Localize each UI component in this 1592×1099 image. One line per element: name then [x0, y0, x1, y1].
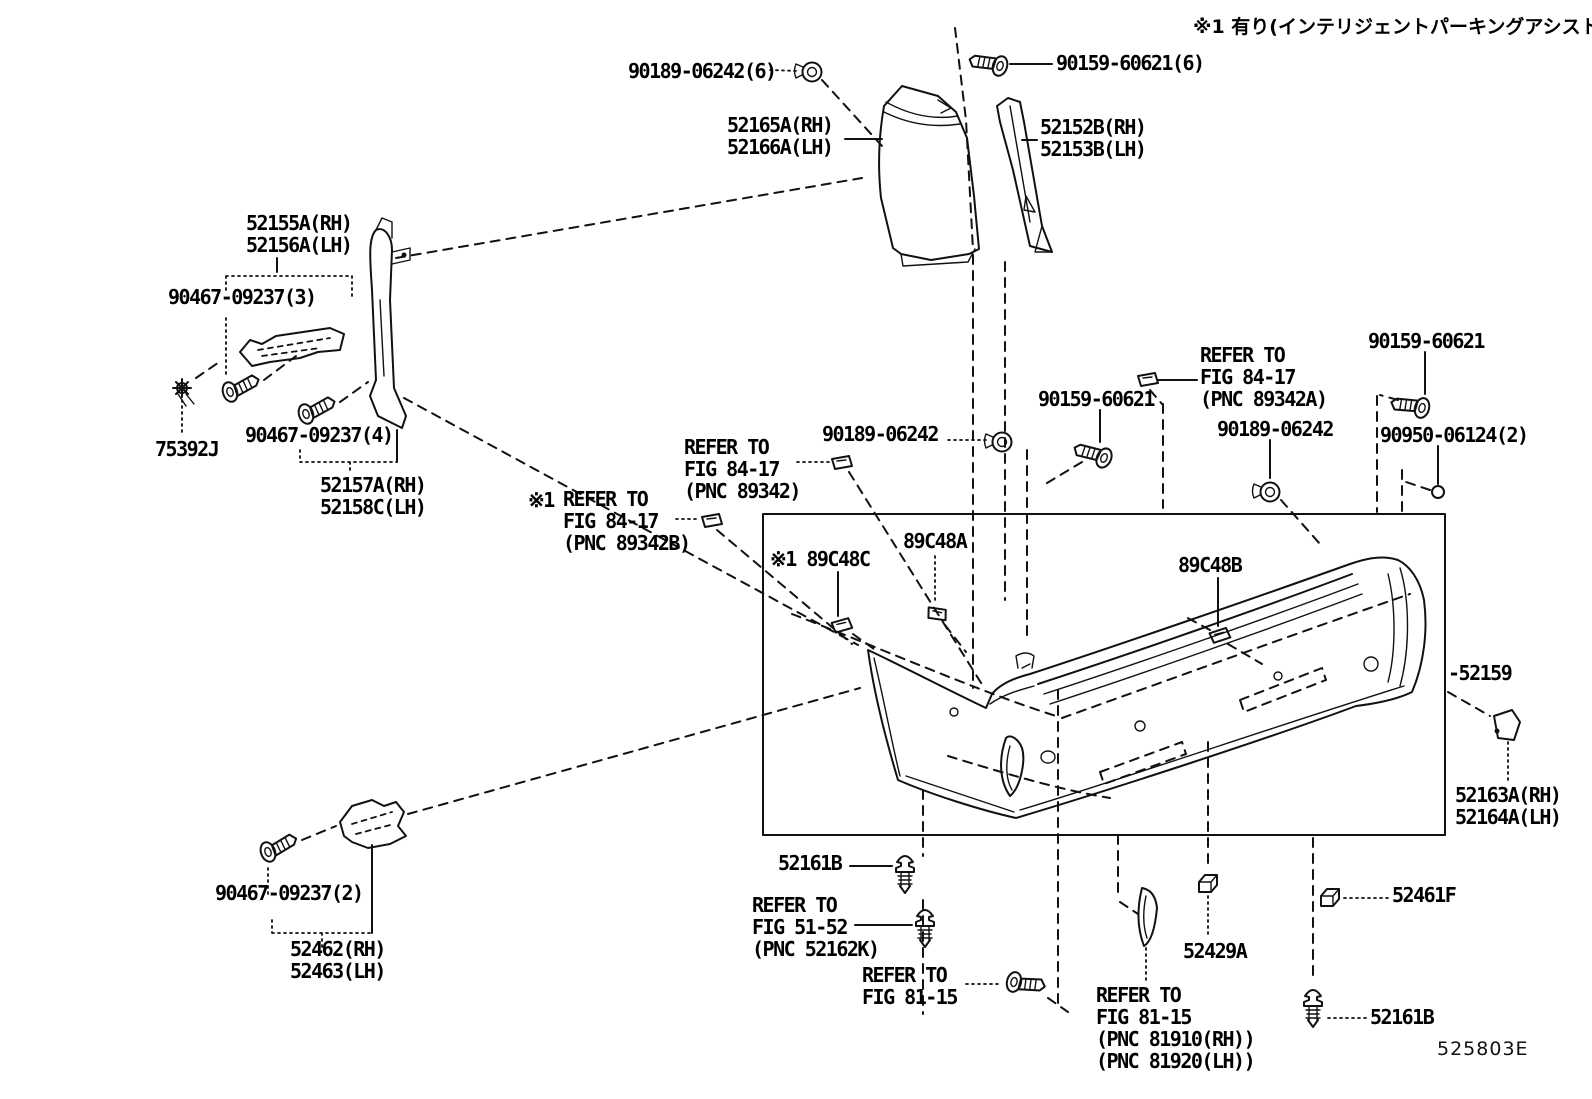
screw-icon — [967, 47, 1009, 78]
part-label-90159-60621-6: 90159-60621(6) — [1056, 52, 1204, 74]
grommet-icon — [1253, 483, 1280, 502]
pin-90950-icon — [1432, 486, 1444, 498]
clip-89c48b-icon — [1209, 628, 1231, 644]
part-label-90189-06242-6: 90189-06242(6) — [628, 60, 776, 82]
grommet-icon — [795, 63, 822, 82]
part-label-52462-52463: 52462(RH) 52463(LH) — [290, 938, 385, 982]
refer-note-pnc-89342: REFER TO FIG 84-17 (PNC 89342) — [684, 436, 800, 502]
part-label-52163a-52164a: 52163A(RH) 52164A(LH) — [1455, 784, 1560, 828]
part-label-52157a-52158c: 52157A(RH) 52158C(LH) — [320, 474, 425, 518]
clip-89c48c-icon — [831, 618, 852, 633]
part-label-90467-09237-2: 90467-09237(2) — [215, 882, 363, 904]
nut-52429a-icon — [1199, 875, 1217, 892]
part-label-90467-09237-4: 90467-09237(4) — [245, 424, 393, 446]
part-label-90189-06242-center: 90189-06242 — [822, 423, 938, 445]
note-intelligent-parking-assist: ※1 有り(インテリジェントパーキングアシスト) — [1193, 16, 1592, 38]
refer-note-fig-81-15-right: REFER TO FIG 81-15 (PNC 81910(RH)) (PNC … — [1096, 984, 1254, 1072]
clip-icon — [832, 456, 852, 469]
drawing-code: 525803E — [1437, 1038, 1529, 1060]
part-label-75392j: 75392J — [155, 438, 218, 460]
screw-icon — [220, 373, 262, 404]
part-label-89c48b: 89C48B — [1178, 554, 1241, 576]
clip-icon — [1138, 373, 1158, 386]
retainer-52163a-icon — [1494, 710, 1520, 740]
parts-diagram-canvas: ※1 有り(インテリジェントパーキングアシスト)90189-06242(6)90… — [0, 0, 1592, 1099]
part-label-52161b-right: 52161B — [1370, 1006, 1433, 1028]
rivet-52162k-icon — [916, 910, 934, 947]
part-label-52461f: 52461F — [1392, 884, 1455, 906]
refer-note-pnc-89342b: REFER TO FIG 84-17 (PNC 89342B) — [563, 488, 690, 554]
part-label-90189-06242-right: 90189-06242 — [1217, 418, 1333, 440]
part-label-89c48c: ※1 89C48C — [770, 548, 870, 570]
part-label-90950-06124-2: 90950-06124(2) — [1380, 424, 1528, 446]
rivet-52161b-right-icon — [1304, 990, 1322, 1027]
trim-panel-52165a — [879, 86, 979, 266]
part-label-52159: -52159 — [1448, 662, 1511, 684]
refer-note-fig-81-15-left: REFER TO FIG 81-15 — [862, 964, 957, 1008]
part-label-52161b-left: 52161B — [778, 852, 841, 874]
part-label-52429a: 52429A — [1183, 940, 1246, 962]
part-label-90159-60621-right: 90159-60621 — [1368, 330, 1484, 352]
bracket-52462 — [340, 800, 406, 848]
star-screw-75392j-icon — [173, 379, 194, 406]
grommet-icon — [985, 433, 1012, 452]
part-label-52152b-52153b: 52152B(RH) 52153B(LH) — [1040, 116, 1145, 160]
screw-icon — [258, 832, 301, 864]
nut-52461f-icon — [1321, 889, 1339, 906]
part-label-52155a-52156a: 52155A(RH) 52156A(LH) — [246, 212, 351, 256]
rivet-52161b-icon — [896, 856, 914, 893]
clip-icon — [702, 514, 722, 527]
refer-note-pnc-89342a: REFER TO FIG 84-17 (PNC 89342A) — [1200, 344, 1327, 410]
part-label-90467-09237-3: 90467-09237(3) — [168, 286, 316, 308]
refer-note-pnc-52162k: REFER TO FIG 51-52 (PNC 52162K) — [752, 894, 879, 960]
rear-bumper-cover — [792, 557, 1426, 818]
bracket-52155a — [240, 328, 344, 366]
note-mark-1: ※1 — [528, 489, 554, 511]
screw-icon — [296, 395, 338, 426]
part-label-52165a-52166a: 52165A(RH) 52166A(LH) — [727, 114, 832, 158]
retainer-52157a — [370, 218, 410, 428]
side-piece-fig81-15 — [1138, 888, 1157, 946]
screw-icon — [1005, 971, 1047, 1000]
part-label-90159-60621-center: 90159-60621 — [1038, 388, 1154, 410]
part-label-89c48a: 89C48A — [903, 530, 966, 552]
